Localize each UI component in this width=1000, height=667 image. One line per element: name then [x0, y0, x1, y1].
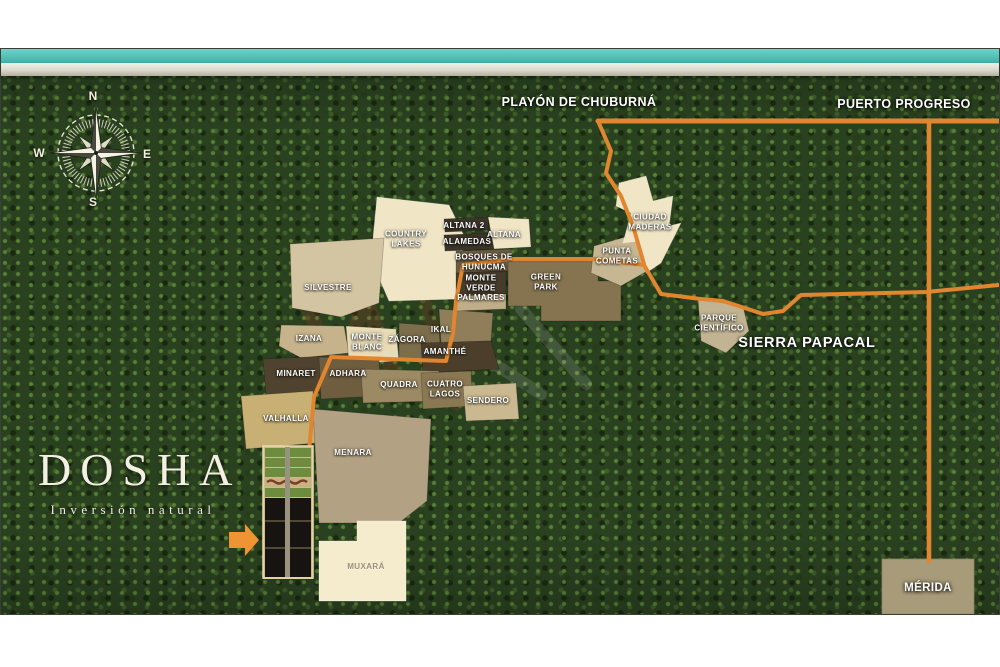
road-sierra-papacal [644, 265, 999, 314]
parcel-label-monte-verde: MONTE VERDE [462, 273, 500, 292]
parcel-label-muxara: MUXARÁ [347, 562, 385, 572]
brand-logo: DOSHA Inversión natural [29, 447, 237, 518]
parcel-label-punta-cometas: PUNTA COMETAS [593, 246, 641, 265]
parcel-muxara [319, 521, 406, 601]
parcel-label-sendero: SENDERO [467, 396, 509, 406]
parcel-label-ikal: IKAL [431, 325, 451, 335]
parcel-label-valhalla: VALHALLA [263, 414, 309, 424]
compass-north-label: N [89, 89, 98, 103]
parcel-label-quadra: QUADRA [380, 380, 418, 390]
region-label-playon-de-chuburna: PLAYÓN DE CHUBURNÁ [502, 95, 657, 109]
parcel-label-parque-cientifico: PARQUE CIENTÍFICO [690, 313, 748, 332]
parcel-label-bosques-de-hunucma: BOSQUES DE HUNUCMA [455, 252, 513, 271]
parcel-label-country-lakes: COUNTRY LAKES [381, 229, 431, 248]
letterbox-top [0, 0, 1000, 48]
parcel-label-izana: IZANA [296, 334, 322, 344]
parcel-label-palmares: PALMARES [457, 293, 505, 303]
pointer-arrow-icon [229, 524, 259, 556]
brand-tagline: Inversión natural [29, 502, 237, 518]
parcel-label-cuatro-lagos: CUATRO LAGOS [423, 379, 467, 398]
map-canvas: N S W E PLAYÓN DE CHUBURNÁ PUERTO PROGRE… [0, 48, 1000, 615]
parcel-label-green-park: GREEN PARK [527, 272, 565, 291]
parcel-label-zagora: ZÁGORA [388, 335, 425, 345]
map-overlay [1, 49, 999, 614]
highlighted-development [263, 446, 313, 579]
parcel-label-menara: MENARA [334, 448, 372, 458]
parcel-amanthe [421, 341, 499, 373]
compass-rose-icon [46, 103, 146, 203]
parcel-label-amanthe: AMANTHÉ [424, 347, 467, 357]
parcel-silvestre [290, 238, 384, 317]
region-label-merida: MÉRIDA [904, 582, 952, 594]
compass-west-label: W [33, 146, 44, 160]
parcel-label-ciudad-maderas: CIUDAD MADERAS [625, 212, 675, 231]
parcel-menara [313, 409, 431, 523]
parcel-label-monte-blanc: MONTE BLANC [348, 332, 386, 351]
parcel-label-minaret: MINARET [276, 369, 315, 379]
compass-east-label: E [143, 147, 151, 161]
letterbox-bottom [0, 613, 1000, 667]
region-label-puerto-progreso: PUERTO PROGRESO [837, 97, 971, 111]
region-label-sierra-papacal: SIERRA PAPACAL [738, 335, 875, 351]
parcel-label-alamedas: ALAMEDAS [443, 237, 492, 247]
brand-name: DOSHA [29, 447, 237, 493]
parcel-label-silvestre: SILVESTRE [304, 283, 351, 293]
parcel-label-adhara: ADHARA [329, 369, 366, 379]
compass-south-label: S [89, 195, 97, 209]
parcel-label-altana-2: ALTANA 2 [443, 221, 484, 231]
parcel-label-altana: ALTANA [487, 230, 521, 240]
masterplan-map-image: N S W E PLAYÓN DE CHUBURNÁ PUERTO PROGRE… [0, 0, 1000, 667]
